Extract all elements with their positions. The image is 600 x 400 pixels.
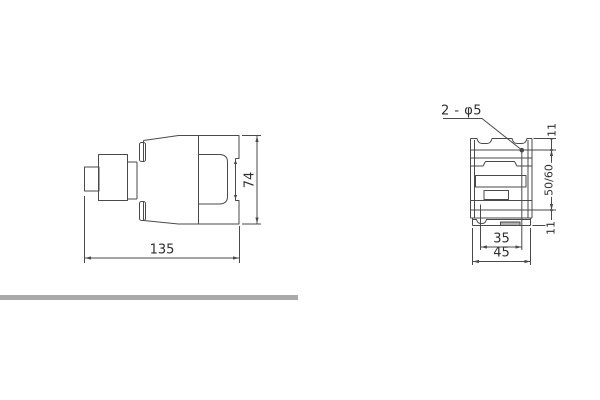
dim135-arrow-right [233,256,239,259]
dimension-drawing-canvas [0,0,600,400]
dim74-arrow-bottom [255,218,258,224]
side-internal-inset [199,155,228,205]
dim45-arrow-right [525,260,531,263]
dim35-arrow-right [516,245,522,248]
side-mid-block [99,155,128,201]
mount-tab-top [140,143,146,162]
dim5060-arrow-top [550,150,553,156]
side-end-block [85,167,100,191]
dim-label-74: 74 [243,171,256,188]
divider-bar [0,295,298,300]
clip-arrow-top [234,160,237,164]
technical-drawing-page: 135 74 2 - φ5 11 50/60 11 35 45 [0,0,600,400]
front-step-line [471,162,533,167]
front-small-window [484,191,509,200]
dim5060-arrow-bottom [550,204,553,210]
dim35-arrow-left [481,245,487,248]
dim74-arrow-top [255,136,258,142]
dim-label-11-bottom: 11 [546,220,557,236]
front-top-edge [471,139,533,144]
dim-label-35: 35 [493,232,510,245]
side-neck [128,162,138,199]
front-inner-walls [475,140,529,218]
front-clip-tab [501,222,521,226]
clip-arrow-bottom [234,195,237,199]
dim-label-135: 135 [150,244,175,257]
hole-callout-leader [443,119,521,150]
dim-label-11-top: 11 [546,122,557,138]
side-body-outline [144,136,240,159]
dim-label-45: 45 [493,247,510,260]
dim-label-50-60: 50/60 [543,163,554,197]
side-body-right-inset [144,159,240,225]
dim45-arrow-left [473,260,479,263]
front-label-window [476,176,527,188]
mount-tab-bottom [140,202,146,221]
hole-callout-label: 2 - φ5 [441,105,482,118]
dim135-arrow-left [85,256,91,259]
